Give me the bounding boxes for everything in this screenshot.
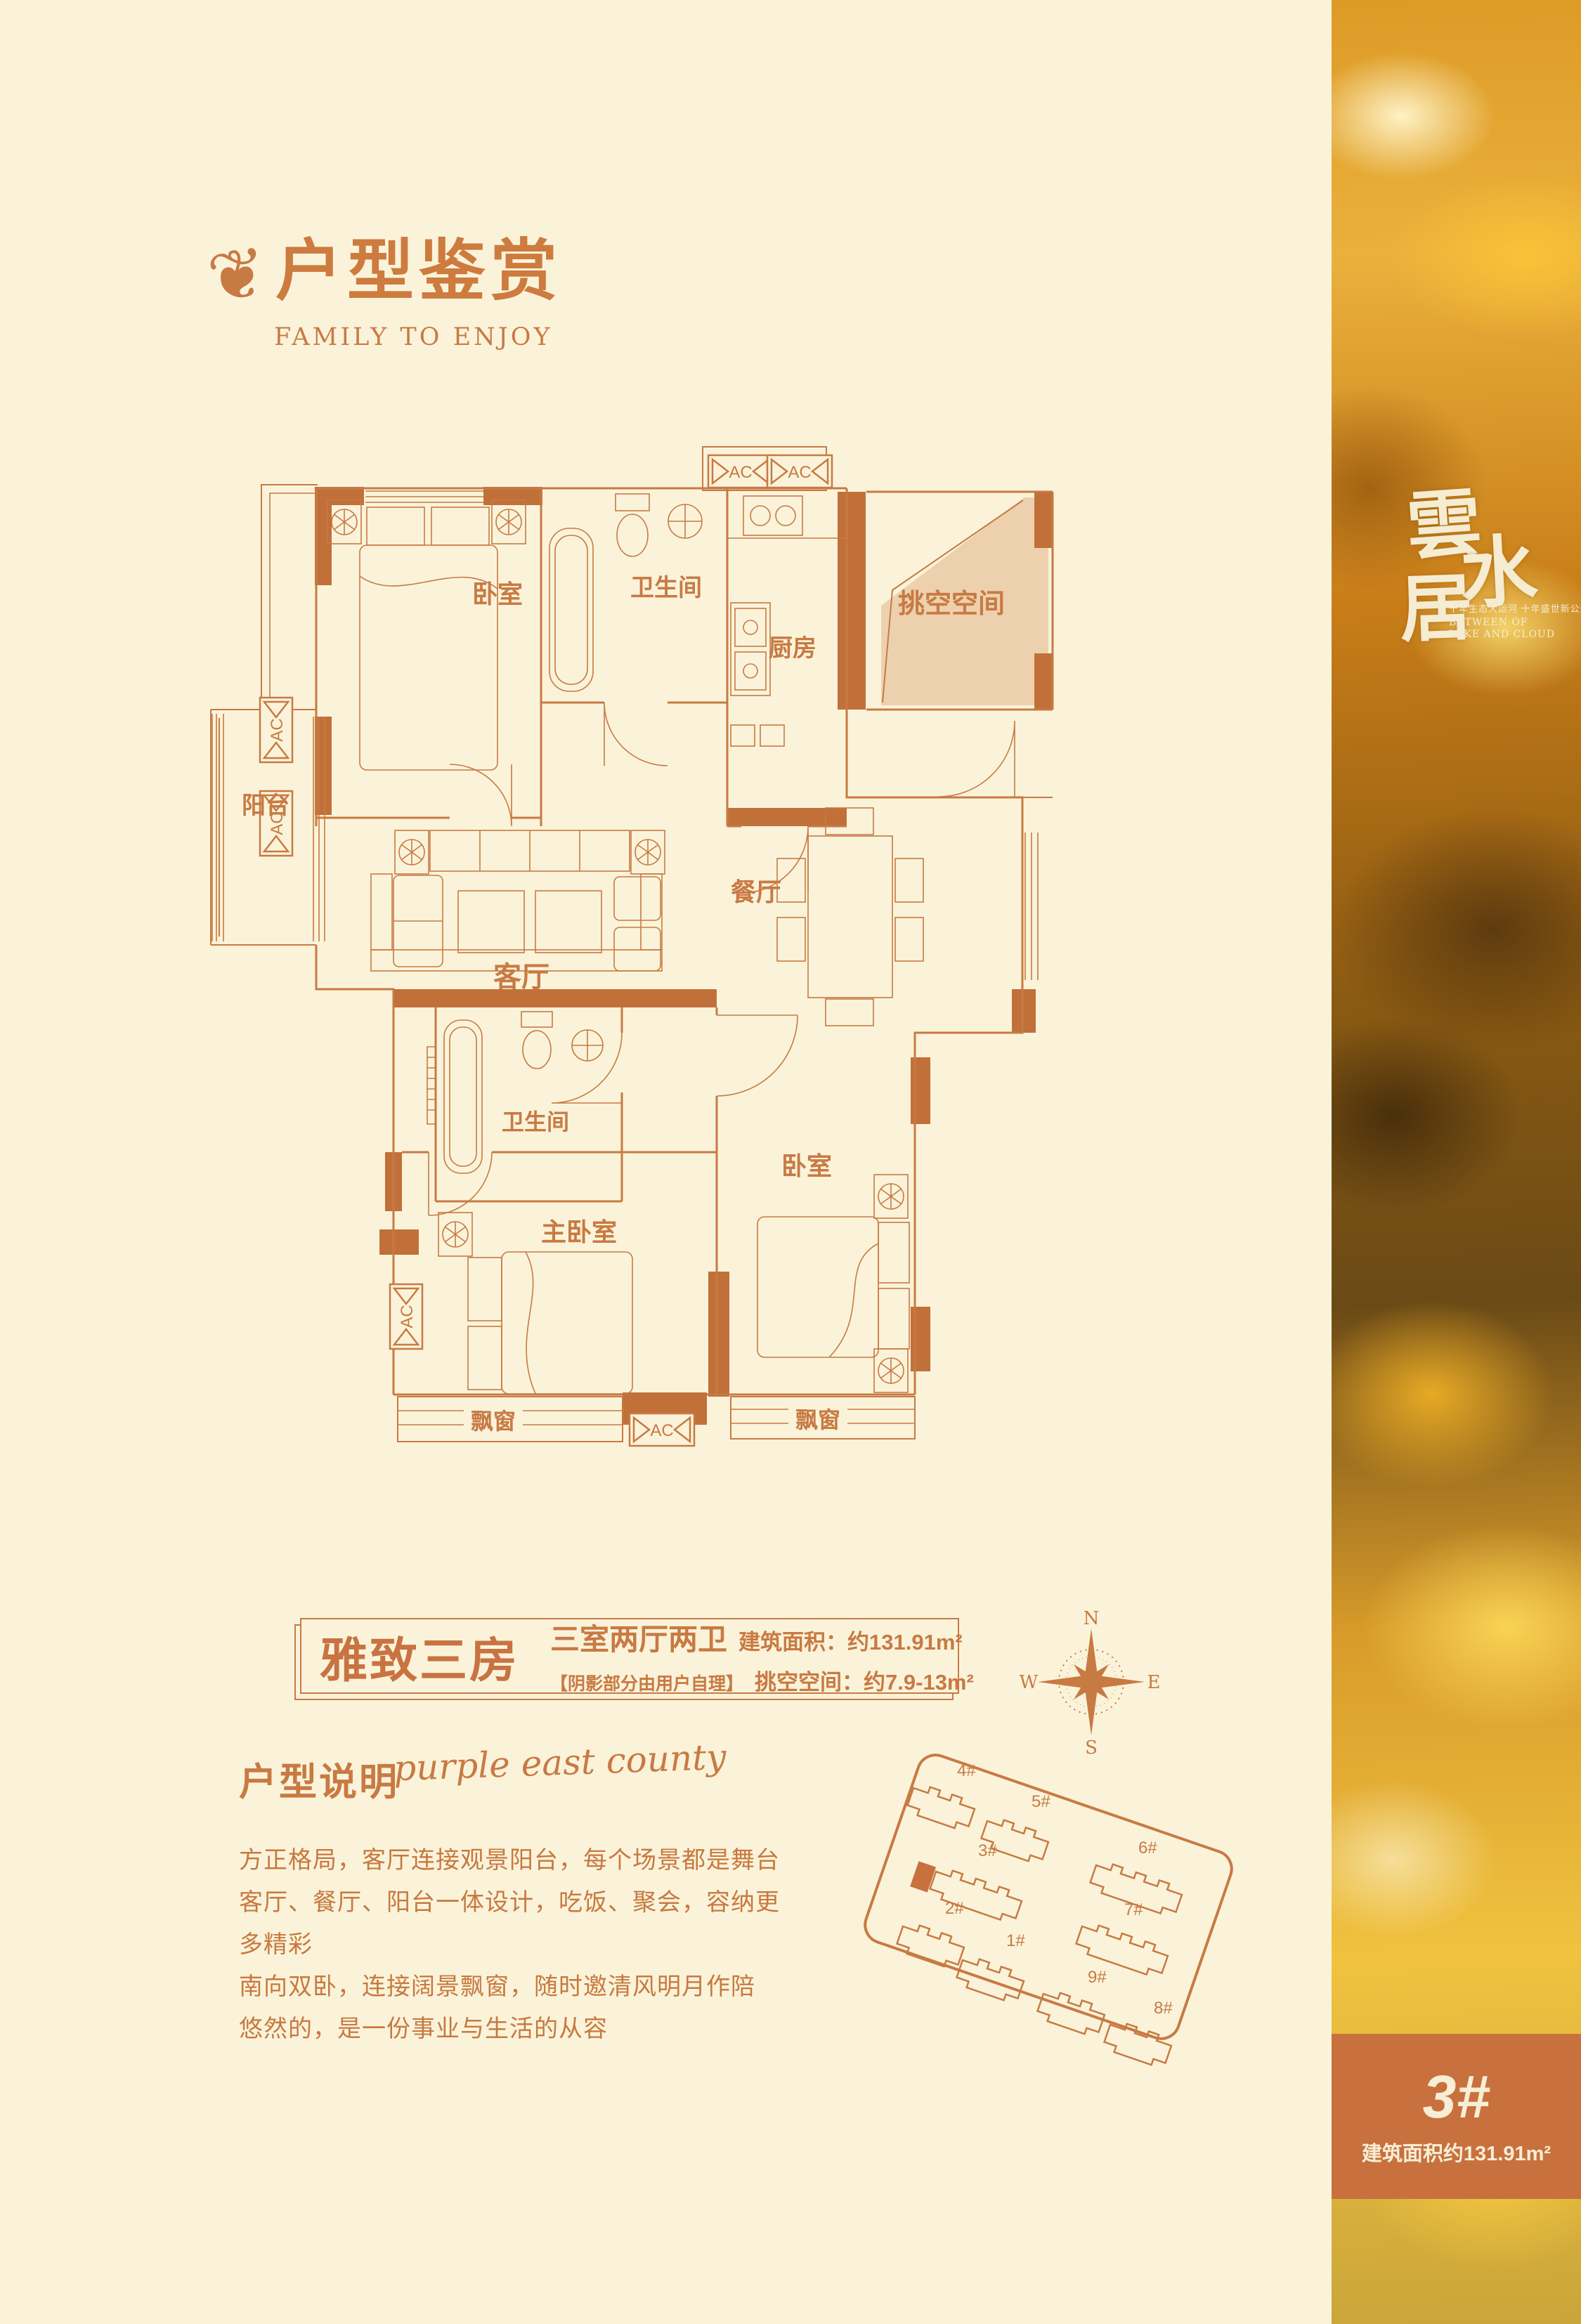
- room-label-bath-mid: 卫生间: [502, 1109, 569, 1135]
- building-badge: 3# 建筑面积约131.91m²: [1332, 2034, 1581, 2199]
- compass-w: W: [1020, 1672, 1039, 1693]
- logo-tagline-en-line1: BETWEEN OF: [1449, 617, 1555, 629]
- logo-tagline: 千年生态大运河 十年盛世新公元: [1449, 601, 1581, 615]
- compass-icon: N S W E: [1020, 1608, 1161, 1758]
- room-label-dining: 餐厅: [731, 877, 781, 906]
- unit-name: 雅致三房: [301, 1621, 536, 1691]
- building-label: 1#: [1006, 1931, 1025, 1950]
- unit-layout: 三室两厅两卫: [550, 1616, 727, 1659]
- room-label-bedroom-top: 卧室: [472, 580, 523, 608]
- compass-s: S: [1085, 1737, 1098, 1758]
- description-line: 方正格局，客厅连接观景阳台，每个场景都是舞台: [239, 1839, 787, 1881]
- photo-strip: [1332, 0, 1581, 2324]
- description-line: 客厅、餐厅、阳台一体设计，吃饭、聚会，容纳更多精彩: [239, 1881, 787, 1966]
- compass-e: E: [1147, 1672, 1161, 1693]
- logo-tagline-en-line2: LAKE AND CLOUD: [1449, 629, 1555, 641]
- floral-ornament-icon: ❦: [203, 237, 271, 315]
- building-label: 3#: [978, 1841, 997, 1860]
- badge-building-number: 3#: [1423, 2067, 1490, 2127]
- room-label-living: 客厅: [493, 962, 549, 993]
- description-script: purple east county: [393, 1737, 727, 1789]
- building-label: 4#: [957, 1761, 976, 1780]
- building-label: 5#: [1032, 1792, 1050, 1811]
- description-line: 悠然的，是一份事业与生活的从容: [239, 2008, 787, 2050]
- building-label: 8#: [1154, 1999, 1173, 2018]
- room-label-void: 挑空空间: [898, 589, 1005, 619]
- page-subtitle: FAMILY TO ENJOY: [274, 323, 553, 351]
- logo-tagline-en: BETWEEN OF LAKE AND CLOUD: [1449, 617, 1555, 641]
- room-label-master: 主卧室: [541, 1218, 617, 1246]
- building-label: 9#: [1088, 1968, 1107, 1987]
- page-title: 户型鉴赏: [275, 237, 562, 304]
- description-line: 南向双卧，连接阔景飘窗，随时邀清风明月作陪: [239, 1966, 787, 2008]
- room-label-bay-left: 飘窗: [471, 1409, 516, 1434]
- site-plan: N S W E 4# 5# 3# 6# 2# 1# 7# 9# 8#: [850, 1567, 1258, 2101]
- room-label-bedroom-right: 卧室: [781, 1151, 832, 1180]
- description-text: 方正格局，客厅连接观景阳台，每个场景都是舞台 客厅、餐厅、阳台一体设计，吃饭、聚…: [239, 1839, 787, 2050]
- floorplan-drawing: AC: [197, 422, 1068, 1475]
- room-label-bay-right: 飘窗: [795, 1407, 840, 1432]
- room-label-balcony: 阳台: [242, 792, 289, 819]
- shade-note: 【阴影部分由用户自理】: [550, 1670, 743, 1695]
- room-label-bath-top: 卫生间: [630, 575, 702, 601]
- room-label-kitchen: 厨房: [769, 635, 816, 662]
- building-label: 2#: [945, 1899, 964, 1918]
- compass-n: N: [1084, 1608, 1100, 1629]
- badge-building-area: 建筑面积约131.91m²: [1362, 2137, 1551, 2167]
- building-label: 6#: [1138, 1839, 1157, 1858]
- building-label: 7#: [1124, 1900, 1143, 1919]
- description-heading: 户型说明: [239, 1751, 399, 1806]
